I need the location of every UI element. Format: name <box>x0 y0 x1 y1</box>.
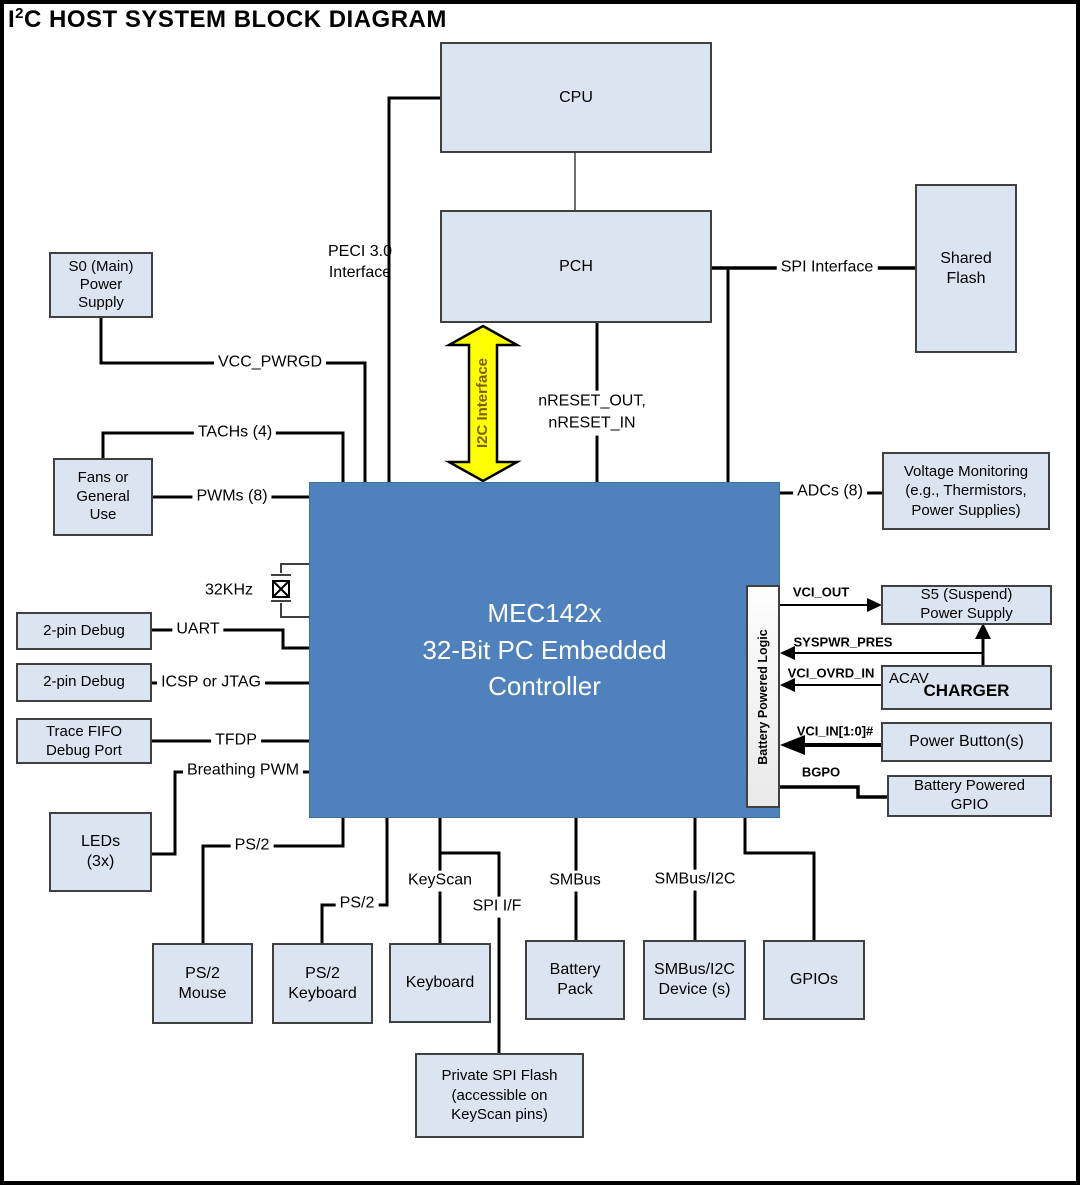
block-keyboard: Keyboard <box>389 943 491 1023</box>
block-trace-fifo-debug-port: Trace FIFO Debug Port <box>16 718 152 764</box>
block-private-spi-flash: Private SPI Flash (accessible on KeyScan… <box>415 1053 584 1138</box>
block-s0-power-supply-label: S0 (Main) Power Supply <box>68 258 133 312</box>
block-power-buttons-label: Power Button(s) <box>909 732 1024 752</box>
i2c-interface-arrow: I2C Interface <box>449 326 517 481</box>
label-nreset: nRESET_OUT, nRESET_IN <box>534 391 650 436</box>
block-s0-power-supply: S0 (Main) Power Supply <box>49 252 153 318</box>
charger-s5-arrowhead <box>975 623 991 639</box>
label-uart: UART <box>172 620 223 641</box>
diagram-canvas: I2C Interface I2C HOST SYSTEM BLOCK DIAG… <box>0 0 1080 1185</box>
label-breathing-pwm: Breathing PWM <box>183 761 303 782</box>
bgpo-wire <box>780 787 887 797</box>
block-battery-powered-gpio: Battery Powered GPIO <box>887 775 1052 817</box>
block-mec142x-label: MEC142x 32-Bit PC Embedded Controller <box>422 595 666 706</box>
label-keyscan: KeyScan <box>404 871 476 892</box>
block-pch: PCH <box>440 210 712 323</box>
label-vci-out: VCI_OUT <box>793 585 849 600</box>
label-vci-ovrd-in: VCI_OVRD_IN <box>788 666 875 681</box>
block-ps2-keyboard: PS/2 Keyboard <box>272 943 373 1024</box>
vci-out-arrowhead <box>867 598 882 612</box>
block-2pin-debug-uart: 2-pin Debug <box>16 612 152 650</box>
block-battery-powered-logic: Battery Powered Logic <box>746 585 780 808</box>
block-battery-pack: Battery Pack <box>525 940 625 1020</box>
block-charger-label: CHARGER <box>924 674 1010 701</box>
block-leds: LEDs (3x) <box>49 812 152 892</box>
label-adcs: ADCs (8) <box>793 482 867 503</box>
block-gpios: GPIOs <box>763 940 865 1020</box>
label-spi-interface: SPI Interface <box>777 258 878 279</box>
crystal-icon <box>271 564 309 617</box>
block-battery-pack-label: Battery Pack <box>550 960 601 1000</box>
ps2-keyboard-wire <box>322 818 387 943</box>
block-voltage-monitoring: Voltage Monitoring (e.g., Thermistors, P… <box>882 452 1050 530</box>
block-ps2-keyboard-label: PS/2 Keyboard <box>288 964 357 1004</box>
block-power-buttons: Power Button(s) <box>881 722 1052 762</box>
block-battery-powered-gpio-label: Battery Powered GPIO <box>914 777 1025 815</box>
label-smbus-i2c: SMBus/I2C <box>651 870 740 891</box>
block-cpu-label: CPU <box>559 88 593 108</box>
label-pwms: PWMs (8) <box>192 487 271 508</box>
block-ps2-mouse: PS/2 Mouse <box>152 943 253 1024</box>
block-gpios-label: GPIOs <box>790 970 838 990</box>
label-bgpo: BGPO <box>802 765 840 780</box>
block-fans-general-use: Fans or General Use <box>53 458 153 536</box>
block-trace-fifo-label: Trace FIFO Debug Port <box>46 722 122 761</box>
block-shared-flash: Shared Flash <box>915 184 1017 353</box>
block-ps2-mouse-label: PS/2 Mouse <box>178 964 226 1004</box>
label-tfdp: TFDP <box>211 731 261 752</box>
block-2pin-debug-icsp-label: 2-pin Debug <box>43 673 125 692</box>
block-keyboard-label: Keyboard <box>406 973 475 993</box>
block-leds-label: LEDs (3x) <box>81 832 120 872</box>
gpios-wire <box>745 818 814 940</box>
block-cpu: CPU <box>440 42 712 153</box>
block-mec142x-controller: MEC142x 32-Bit PC Embedded Controller <box>309 482 780 818</box>
block-private-spi-flash-label: Private SPI Flash (accessible on KeyScan… <box>442 1066 558 1125</box>
block-voltage-monitoring-label: Voltage Monitoring (e.g., Thermistors, P… <box>904 462 1028 521</box>
label-tachs: TACHs (4) <box>194 423 276 444</box>
block-s5-power-supply: S5 (Suspend) Power Supply <box>881 585 1052 625</box>
i2c-interface-label: I2C Interface <box>474 358 491 448</box>
label-peci-interface: PECI 3.0 Interface <box>328 242 392 284</box>
label-syspwr-pres: SYSPWR_PRES <box>794 635 893 650</box>
title-rest: C HOST SYSTEM BLOCK DIAGRAM <box>24 6 447 33</box>
diagram-title: I2C HOST SYSTEM BLOCK DIAGRAM <box>8 5 447 34</box>
block-shared-flash-label: Shared Flash <box>940 249 992 289</box>
label-ps2-mouse-wire: PS/2 <box>231 836 274 857</box>
block-2pin-debug-uart-label: 2-pin Debug <box>43 622 125 641</box>
label-spi-if: SPI I/F <box>469 897 526 918</box>
block-fans-label: Fans or General Use <box>76 469 129 525</box>
title-superscript: 2 <box>15 5 24 22</box>
block-battery-powered-logic-label: Battery Powered Logic <box>756 629 770 764</box>
label-32khz: 32KHz <box>205 581 253 602</box>
block-smbus-i2c-device: SMBus/I2C Device (s) <box>643 940 746 1020</box>
label-icsp-jtag: ICSP or JTAG <box>157 673 265 694</box>
label-vci-in: VCI_IN[1:0]# <box>797 724 874 739</box>
block-s5-power-supply-label: S5 (Suspend) Power Supply <box>920 586 1013 624</box>
block-pch-label: PCH <box>559 257 593 277</box>
label-smbus: SMBus <box>545 871 605 892</box>
block-charger: ACAV CHARGER <box>881 665 1052 710</box>
label-ps2-keyboard-wire: PS/2 <box>336 894 379 915</box>
block-smbus-i2c-device-label: SMBus/I2C Device (s) <box>654 960 735 1000</box>
acav-label: ACAV <box>889 670 929 689</box>
peci-wire <box>389 98 440 484</box>
label-vcc-pwrgd: VCC_PWRGD <box>214 353 326 374</box>
block-2pin-debug-icsp: 2-pin Debug <box>16 663 152 702</box>
